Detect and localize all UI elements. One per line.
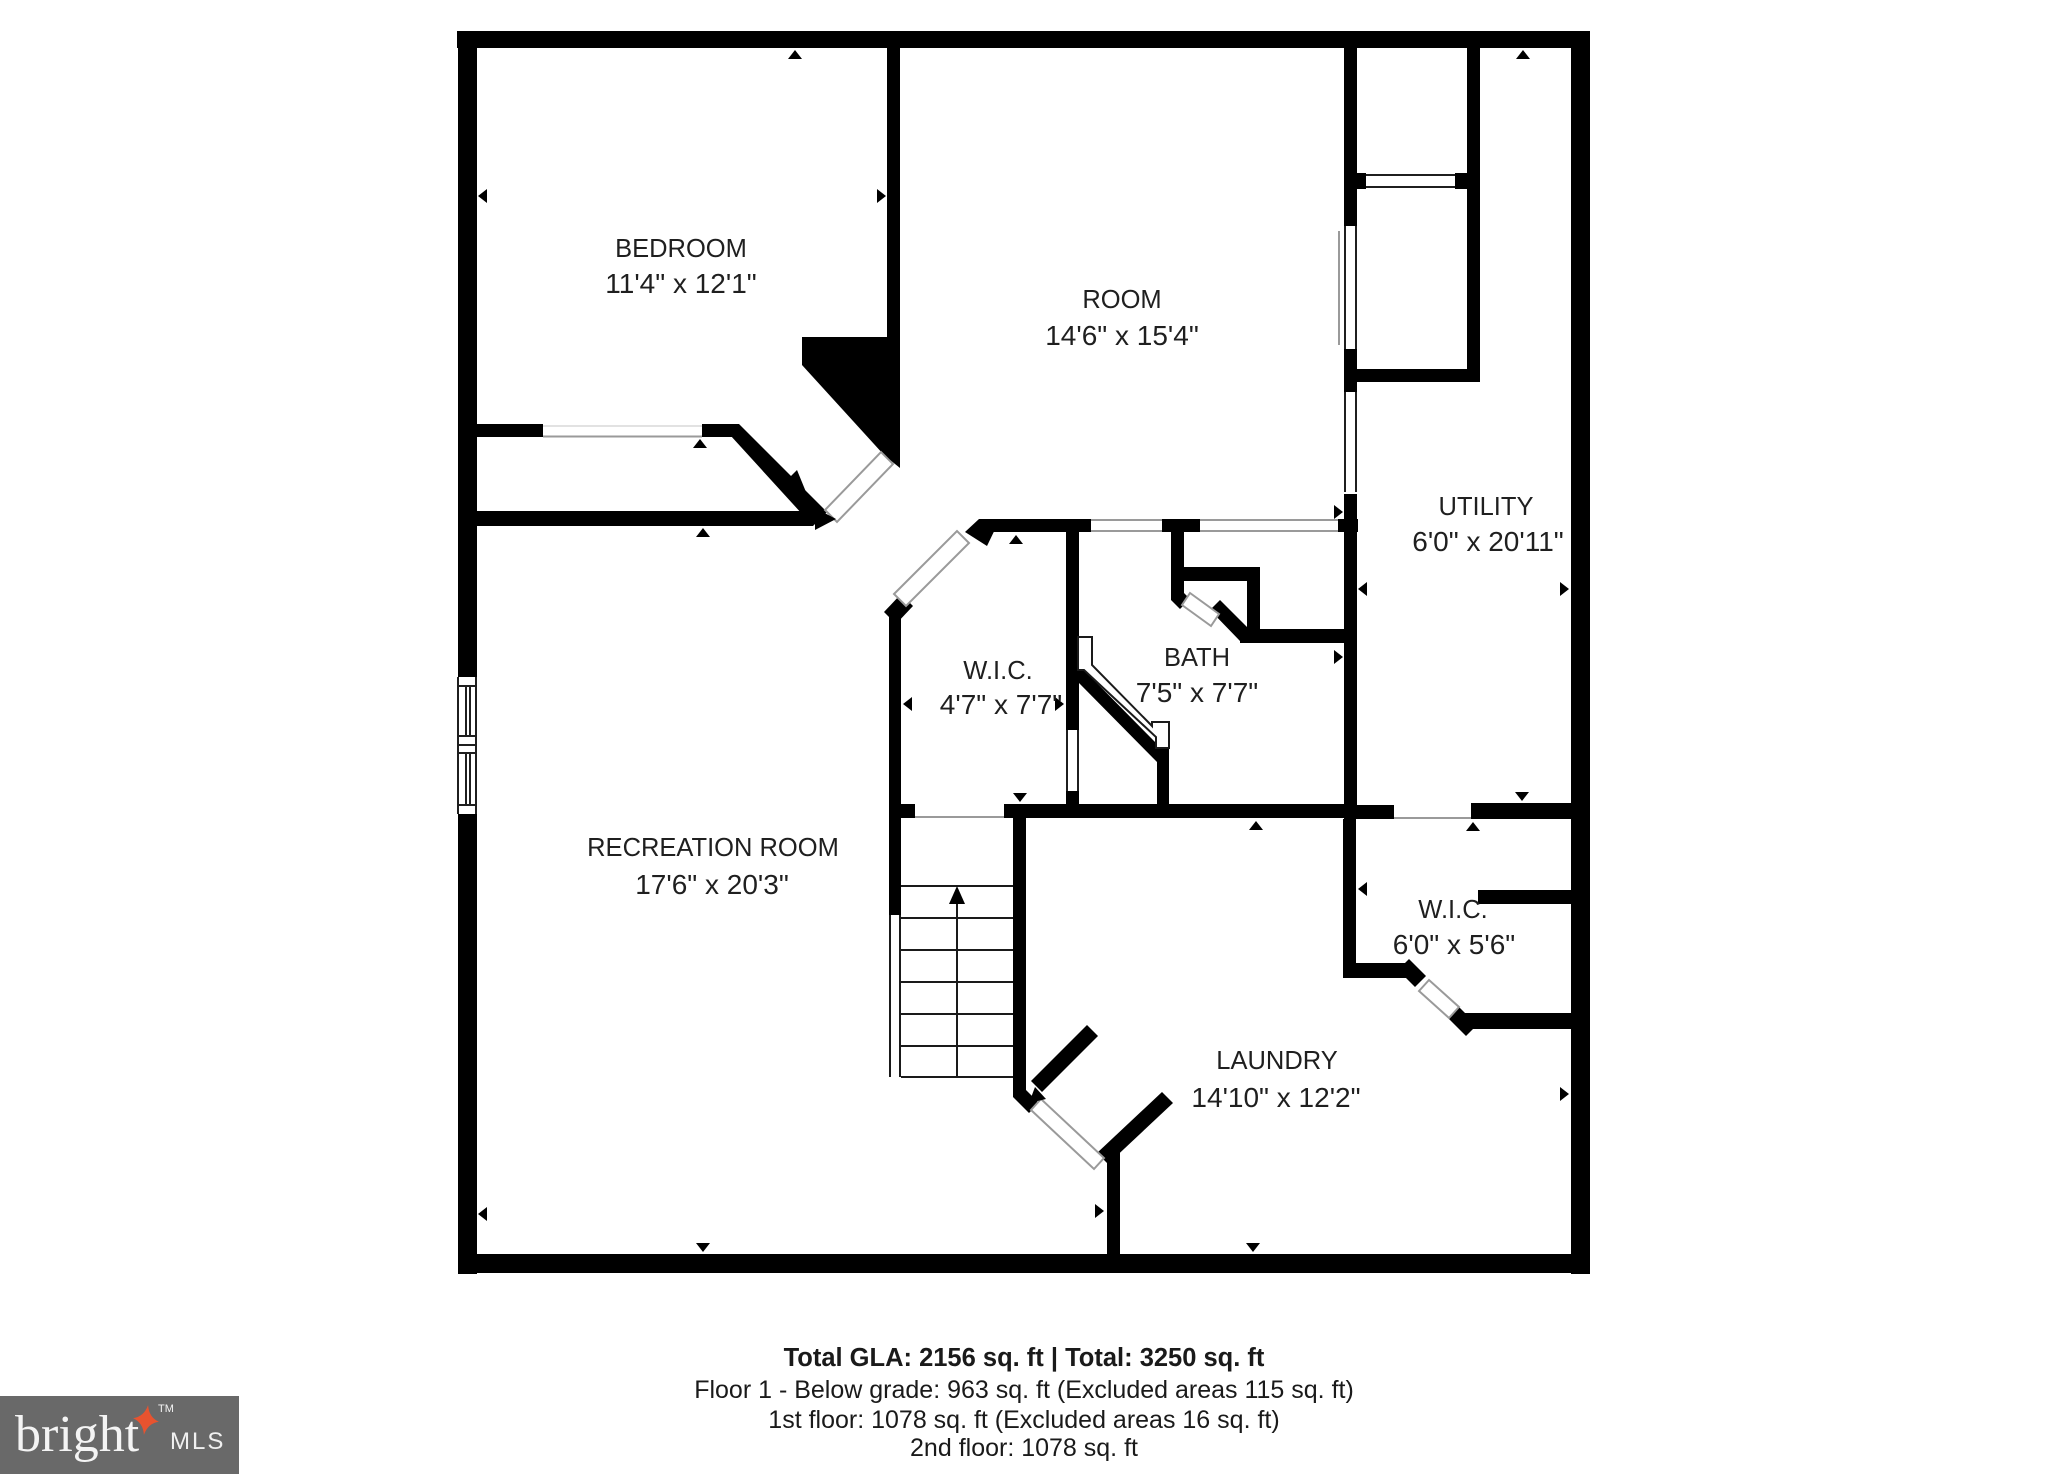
svg-text:1st floor: 1078 sq. ft (Exclud: 1st floor: 1078 sq. ft (Excluded areas 1… bbox=[768, 1406, 1279, 1434]
svg-text:11'4" x 12'1": 11'4" x 12'1" bbox=[605, 268, 756, 299]
svg-text:6'0" x 20'11": 6'0" x 20'11" bbox=[1412, 526, 1563, 557]
svg-text:14'10" x 12'2": 14'10" x 12'2" bbox=[1191, 1082, 1360, 1113]
svg-text:4'7" x 7'7": 4'7" x 7'7" bbox=[940, 689, 1062, 720]
svg-text:14'6" x 15'4": 14'6" x 15'4" bbox=[1045, 320, 1199, 351]
svg-text:UTILITY: UTILITY bbox=[1439, 493, 1534, 521]
svg-text:RECREATION ROOM: RECREATION ROOM bbox=[587, 834, 839, 862]
svg-text:LAUNDRY: LAUNDRY bbox=[1216, 1047, 1337, 1075]
svg-text:Total GLA: 2156 sq. ft | Total: Total GLA: 2156 sq. ft | Total: 3250 sq.… bbox=[784, 1344, 1265, 1372]
svg-text:Floor 1 - Below grade: 963 sq.: Floor 1 - Below grade: 963 sq. ft (Exclu… bbox=[694, 1376, 1354, 1404]
svg-text:MLS: MLS bbox=[170, 1428, 225, 1455]
svg-text:6'0" x 5'6": 6'0" x 5'6" bbox=[1393, 929, 1515, 960]
svg-text:ROOM: ROOM bbox=[1082, 286, 1161, 314]
svg-text:TM: TM bbox=[158, 1403, 174, 1415]
svg-text:W.I.C.: W.I.C. bbox=[963, 657, 1032, 685]
svg-text:7'5" x 7'7": 7'5" x 7'7" bbox=[1136, 677, 1258, 708]
svg-text:BEDROOM: BEDROOM bbox=[615, 235, 747, 263]
svg-text:2nd floor: 1078 sq. ft: 2nd floor: 1078 sq. ft bbox=[910, 1434, 1138, 1462]
svg-text:BATH: BATH bbox=[1164, 644, 1230, 672]
svg-text:W.I.C.: W.I.C. bbox=[1418, 896, 1487, 924]
svg-text:17'6" x 20'3": 17'6" x 20'3" bbox=[635, 869, 789, 900]
svg-text:bright: bright bbox=[15, 1406, 140, 1463]
